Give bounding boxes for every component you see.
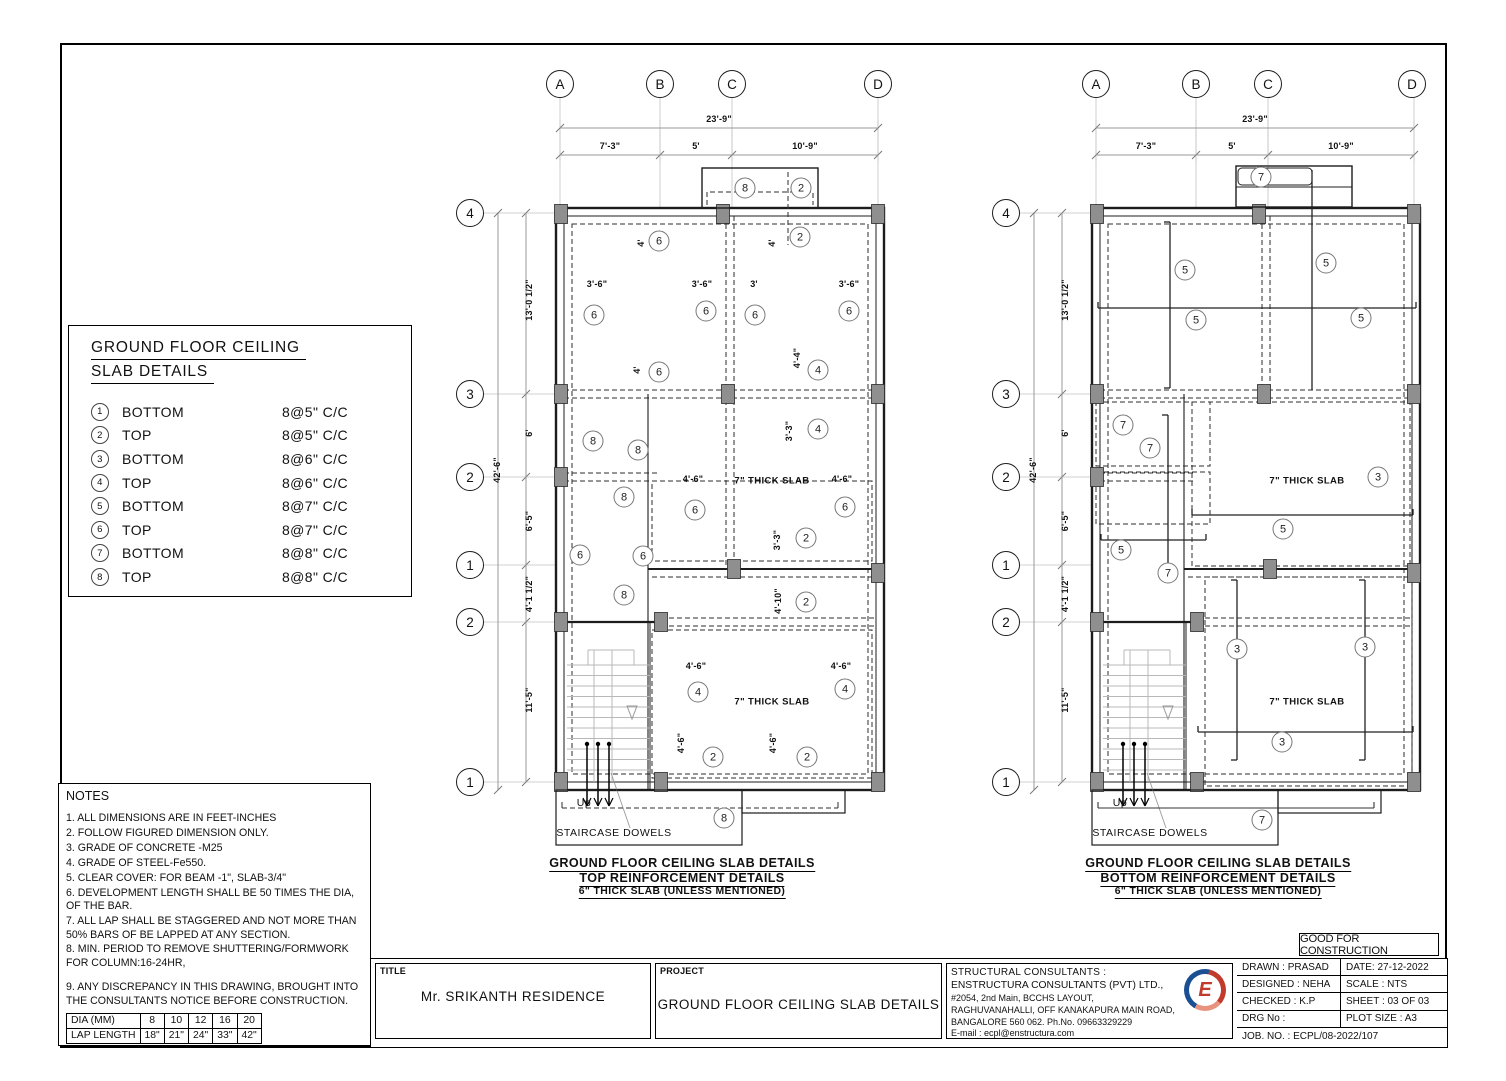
project-label: PROJECT	[660, 966, 704, 976]
legend-item-circle: 5	[91, 497, 109, 515]
titleblock-project-cell: PROJECT GROUND FLOOR CEILING SLAB DETAIL…	[655, 963, 942, 1039]
note-item: 5. CLEAR COVER: FOR BEAM -1", SLAB-3/4"	[66, 872, 367, 885]
notes-title: NOTES	[66, 789, 367, 805]
note-item: 3. GRADE OF CONCRETE -M25	[66, 842, 367, 855]
legend-item-spec: 8@8" C/C	[282, 545, 348, 561]
legend-item-position: TOP	[122, 475, 282, 491]
lap-table-cell: 12	[189, 1014, 213, 1029]
lap-table-cell: 8	[140, 1014, 164, 1029]
lap-table-cell: DIA (MM)	[67, 1014, 141, 1029]
title-label: TITLE	[380, 966, 406, 976]
consultants-address: STRUCTURAL CONSULTANTS :ENSTRUCTURA CONS…	[951, 966, 1228, 1040]
lap-table-cell: LAP LENGTH	[67, 1029, 141, 1044]
lap-table-cell: 33"	[213, 1029, 237, 1044]
consultants-line: E-mail : ecpl@enstructura.com	[951, 1028, 1228, 1040]
legend-item: 1BOTTOM8@5" C/C	[91, 400, 411, 424]
legend-item: 4TOP8@6" C/C	[91, 471, 411, 495]
legend-item-position: TOP	[122, 427, 282, 443]
legend-item-spec: 8@6" C/C	[282, 451, 348, 467]
company-logo-letter: E	[1189, 974, 1221, 1006]
lap-table-cell: 16	[213, 1014, 237, 1029]
note-item: 8. MIN. PERIOD TO REMOVE SHUTTERING/FORM…	[66, 943, 367, 970]
lap-table-cell: 42"	[237, 1029, 261, 1044]
titleblock-field: PLOT SIZE : A3	[1341, 1011, 1447, 1027]
legend-item: 2TOP8@5" C/C	[91, 424, 411, 448]
legend-item-circle: 1	[91, 403, 109, 421]
legend-item-circle: 8	[91, 568, 109, 586]
lap-table-cell: 18"	[140, 1029, 164, 1044]
consultants-line: STRUCTURAL CONSULTANTS :	[951, 966, 1228, 979]
titleblock-field-row: CHECKED : K.PSHEET : 03 OF 03	[1237, 993, 1447, 1010]
legend-item-circle: 4	[91, 474, 109, 492]
legend-item: 5BOTTOM8@7" C/C	[91, 494, 411, 518]
legend-item-circle: 7	[91, 544, 109, 562]
legend-item-position: BOTTOM	[122, 451, 282, 467]
note-item: 7. ALL LAP SHALL BE STAGGERED AND NOT MO…	[66, 915, 367, 942]
note-item: 1. ALL DIMENSIONS ARE IN FEET-INCHES	[66, 812, 367, 825]
note-item: 6. DEVELOPMENT LENGTH SHALL BE 50 TIMES …	[66, 887, 367, 914]
titleblock-field: DRG No :	[1237, 1011, 1341, 1027]
legend-item: 8TOP8@8" C/C	[91, 565, 411, 589]
legend-item: 7BOTTOM8@8" C/C	[91, 542, 411, 566]
legend-item-spec: 8@5" C/C	[282, 404, 348, 420]
titleblock-field: SHEET : 03 OF 03	[1341, 993, 1447, 1009]
legend-item: 3BOTTOM8@6" C/C	[91, 447, 411, 471]
legend-item-position: BOTTOM	[122, 498, 282, 514]
notes-box: NOTES 1. ALL DIMENSIONS ARE IN FEET-INCH…	[58, 783, 371, 1046]
legend-item-circle: 6	[91, 521, 109, 539]
legend-items: 1BOTTOM8@5" C/C2TOP8@5" C/C3BOTTOM8@6" C…	[91, 400, 411, 589]
consultants-line: BANGALORE 560 062. Ph.No. 09663329229	[951, 1017, 1228, 1029]
drawing-sheet: ABCD43212123'-9"42'-6"7'-3"5'10'-9"13'-0…	[0, 0, 1506, 1081]
titleblock-field-row: DRAWN : PRASADDATE: 27-12-2022	[1237, 959, 1447, 976]
titleblock-field: JOB. NO. : ECPL/08-2022/107	[1237, 1028, 1447, 1045]
titleblock-field-row: JOB. NO. : ECPL/08-2022/107	[1237, 1028, 1447, 1045]
note-item: 4. GRADE OF STEEL-Fe550.	[66, 857, 367, 870]
good-for-construction-stamp: GOOD FOR CONSTRUCTION	[1299, 933, 1439, 956]
titleblock-field: SCALE : NTS	[1341, 976, 1447, 992]
legend-item-position: BOTTOM	[122, 404, 282, 420]
legend-item-spec: 8@7" C/C	[282, 522, 348, 538]
legend-item-spec: 8@5" C/C	[282, 427, 348, 443]
legend-item-spec: 8@8" C/C	[282, 569, 348, 585]
titleblock-field: DESIGNED : NEHA	[1237, 976, 1341, 992]
legend-item-position: BOTTOM	[122, 545, 282, 561]
lap-table-row: LAP LENGTH18"21"24"33"42"	[67, 1029, 262, 1044]
note-item: 9. ANY DISCREPANCY IN THIS DRAWING, BROU…	[66, 981, 367, 1008]
legend-item-spec: 8@7" C/C	[282, 498, 348, 514]
legend-title-line2: SLAB DETAILS	[91, 363, 411, 387]
company-logo: E	[1184, 969, 1226, 1011]
titleblock-field: DRAWN : PRASAD	[1237, 959, 1341, 975]
legend-item-position: TOP	[122, 522, 282, 538]
titleblock-field: DATE: 27-12-2022	[1341, 959, 1447, 975]
titleblock-field-row: DRG No :PLOT SIZE : A3	[1237, 1011, 1447, 1028]
legend-title-line1: GROUND FLOOR CEILING	[91, 339, 411, 363]
lap-table-cell: 20	[237, 1014, 261, 1029]
legend-box: GROUND FLOOR CEILING SLAB DETAILS 1BOTTO…	[68, 325, 412, 597]
legend-item: 6TOP8@7" C/C	[91, 518, 411, 542]
lap-length-table: DIA (MM)810121620LAP LENGTH18"21"24"33"4…	[66, 1013, 262, 1044]
titleblock: TITLE Mr. SRIKANTH RESIDENCE PROJECT GRO…	[370, 958, 1448, 1048]
legend-item-circle: 2	[91, 426, 109, 444]
titleblock-consultants-cell: STRUCTURAL CONSULTANTS :ENSTRUCTURA CONS…	[946, 963, 1233, 1039]
titleblock-field: CHECKED : K.P	[1237, 993, 1341, 1009]
residence-title: Mr. SRIKANTH RESIDENCE	[376, 989, 650, 1004]
legend-item-spec: 8@6" C/C	[282, 475, 348, 491]
titleblock-title-cell: TITLE Mr. SRIKANTH RESIDENCE	[375, 963, 651, 1039]
titleblock-fields-table: DRAWN : PRASADDATE: 27-12-2022DESIGNED :…	[1237, 959, 1447, 1047]
lap-table-cell: 24"	[189, 1029, 213, 1044]
legend-item-position: TOP	[122, 569, 282, 585]
lap-table-cell: 10	[164, 1014, 188, 1029]
notes-list: 1. ALL DIMENSIONS ARE IN FEET-INCHES2. F…	[66, 812, 367, 1008]
project-title: GROUND FLOOR CEILING SLAB DETAILS	[656, 997, 941, 1012]
legend-item-circle: 3	[91, 450, 109, 468]
lap-table-cell: 21"	[164, 1029, 188, 1044]
note-item: 2. FOLLOW FIGURED DIMENSION ONLY.	[66, 827, 367, 840]
consultants-line: RAGHUVANAHALLI, OFF KANAKAPURA MAIN ROAD…	[951, 1005, 1228, 1017]
lap-table-row: DIA (MM)810121620	[67, 1014, 262, 1029]
titleblock-field-row: DESIGNED : NEHASCALE : NTS	[1237, 976, 1447, 993]
